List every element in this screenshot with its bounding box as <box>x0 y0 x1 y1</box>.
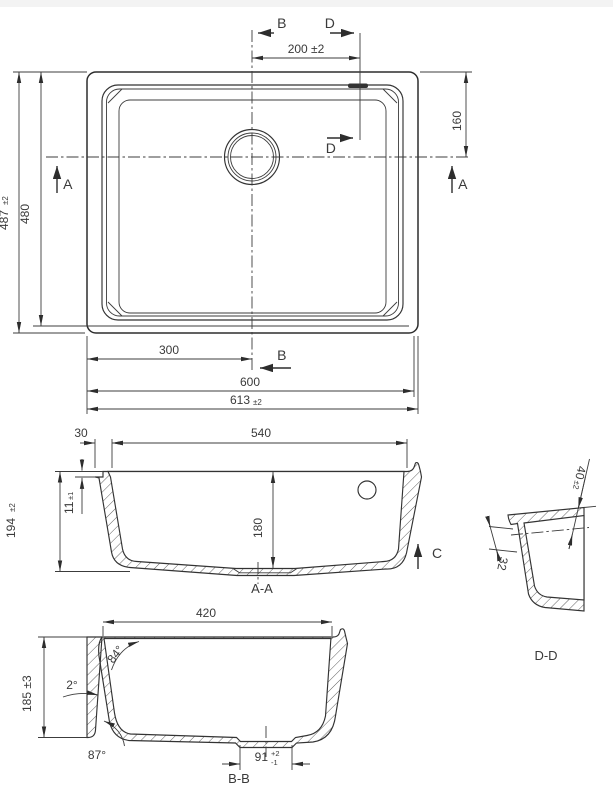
section-d-label-top: D <box>325 15 336 31</box>
dim-30-label: 30 <box>74 426 88 440</box>
section-bb-bowl-cavity <box>104 639 331 742</box>
detail-dd-title: D-D <box>534 648 557 663</box>
dim-91-label: 91 <box>255 750 269 764</box>
overflow-slot-mark <box>348 84 368 89</box>
top-gray-strip <box>0 0 613 7</box>
dim-11-tolerance: ±1 <box>66 492 75 500</box>
section-aa-title: A-A <box>251 581 273 596</box>
section-b-label-top: B <box>277 15 287 31</box>
dim-160-label: 160 <box>450 111 464 131</box>
sink-technical-drawing: B D D B A A 200 ±2 160 <box>0 0 613 800</box>
dim-300-label: 300 <box>159 343 179 357</box>
section-d-label-mid: D <box>326 140 337 156</box>
technical-drawing-sheet: B D D B A A 200 ±2 160 <box>0 0 613 800</box>
section-a-label-right: A <box>458 176 468 192</box>
dim-194-tolerance: ±2 <box>8 503 17 512</box>
dim-11-label: 11 <box>62 501 76 514</box>
dim-420-label: 420 <box>196 606 216 620</box>
dim-487-label: 487 <box>0 210 11 230</box>
angle-2-label: 2° <box>66 678 78 692</box>
dim-91-tolerance-minus: -1 <box>271 758 278 767</box>
section-b-label-bottom: B <box>277 347 287 363</box>
dim-200-label: 200 ±2 <box>288 42 325 56</box>
angle-87-label: 87° <box>88 748 106 762</box>
section-c-label: C <box>432 545 443 561</box>
section-bb-title: B-B <box>228 771 250 786</box>
dim-600-label: 600 <box>240 375 260 389</box>
dim-540-label: 540 <box>251 426 271 440</box>
dim-613-label: 613 <box>230 393 250 407</box>
dim-180-label: 180 <box>251 518 265 538</box>
dim-185-label: 185 ±3 <box>20 675 34 712</box>
dim-91-tolerance-plus: +2 <box>271 749 280 758</box>
dim-480-label: 480 <box>18 204 32 224</box>
dim-194-label: 194 <box>4 518 18 538</box>
dim-487-tolerance: ±2 <box>1 196 10 205</box>
section-a-label-left: A <box>63 176 73 192</box>
dim-613-tolerance: ±2 <box>253 398 262 407</box>
